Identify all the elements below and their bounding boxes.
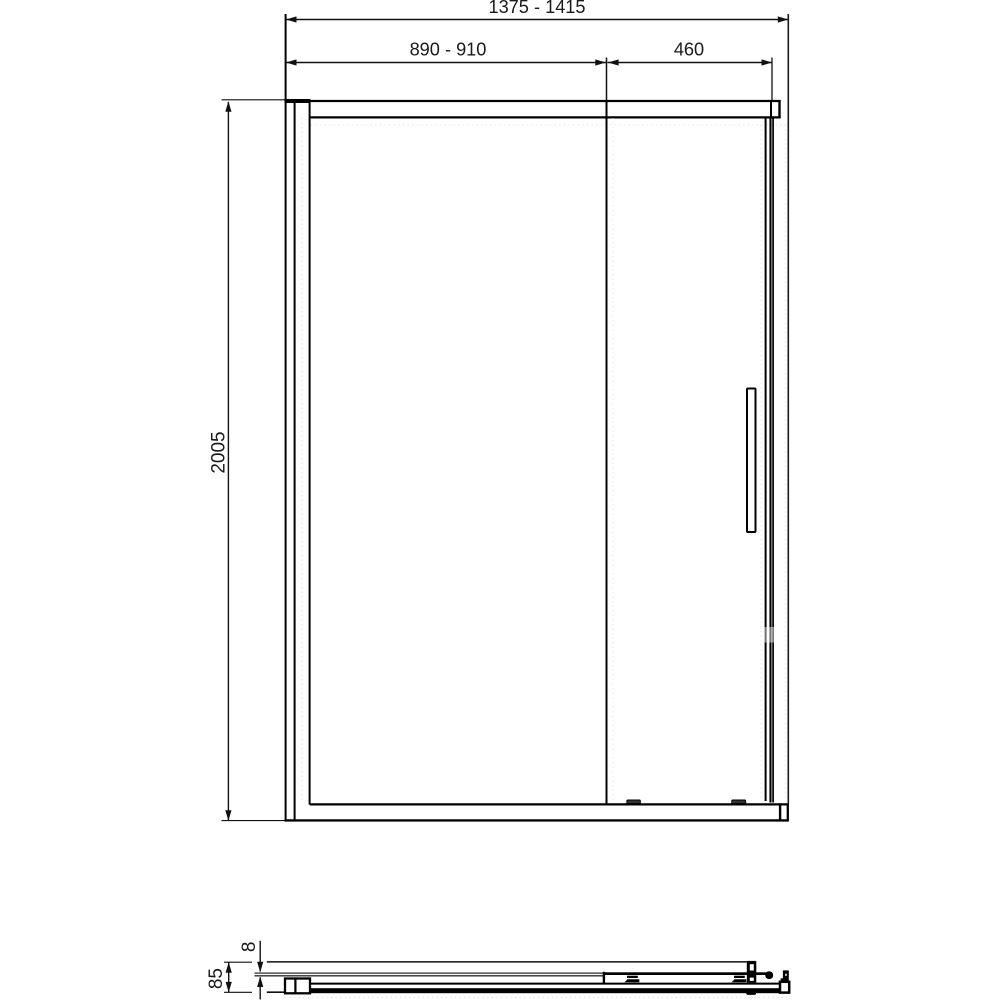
- svg-text:890 - 910: 890 - 910: [410, 40, 487, 60]
- svg-text:8: 8: [239, 942, 260, 953]
- svg-text:2005: 2005: [209, 431, 230, 473]
- svg-text:85: 85: [206, 968, 227, 989]
- svg-text:1375 - 1415: 1375 - 1415: [488, 0, 585, 17]
- svg-text:460: 460: [674, 40, 704, 60]
